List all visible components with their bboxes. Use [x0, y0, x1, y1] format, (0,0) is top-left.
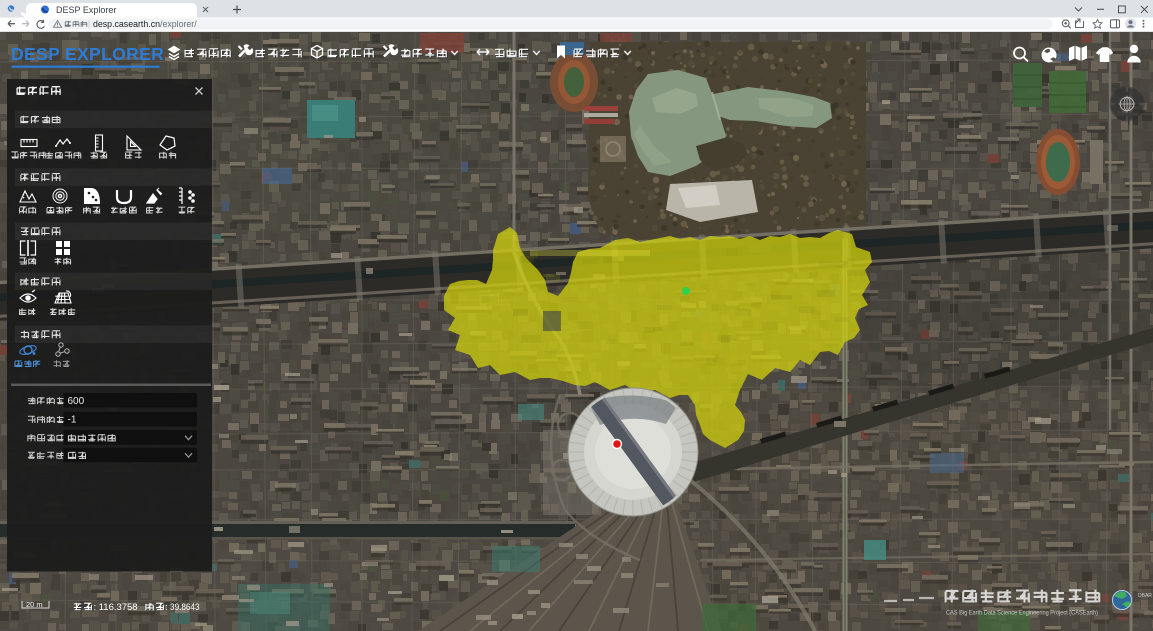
svg-text:DESP EXPLORER: DESP EXPLORER	[11, 44, 164, 64]
svg-text:20 m: 20 m	[26, 600, 43, 609]
svg-text:CAS Big Earth Data Science Eng: CAS Big Earth Data Science Engineering P…	[946, 610, 1098, 617]
svg-text:: 39.8643: : 39.8643	[166, 602, 200, 613]
svg-text:600: 600	[68, 396, 85, 407]
svg-text:-1: -1	[68, 415, 77, 426]
svg-text:desp.casearth.cn/explorer/: desp.casearth.cn/explorer/	[93, 19, 197, 29]
svg-text:: 116.3758: : 116.3758	[94, 602, 138, 613]
svg-text:DESP Explorer: DESP Explorer	[56, 5, 116, 15]
svg-text:DBAR: DBAR	[1138, 593, 1152, 599]
